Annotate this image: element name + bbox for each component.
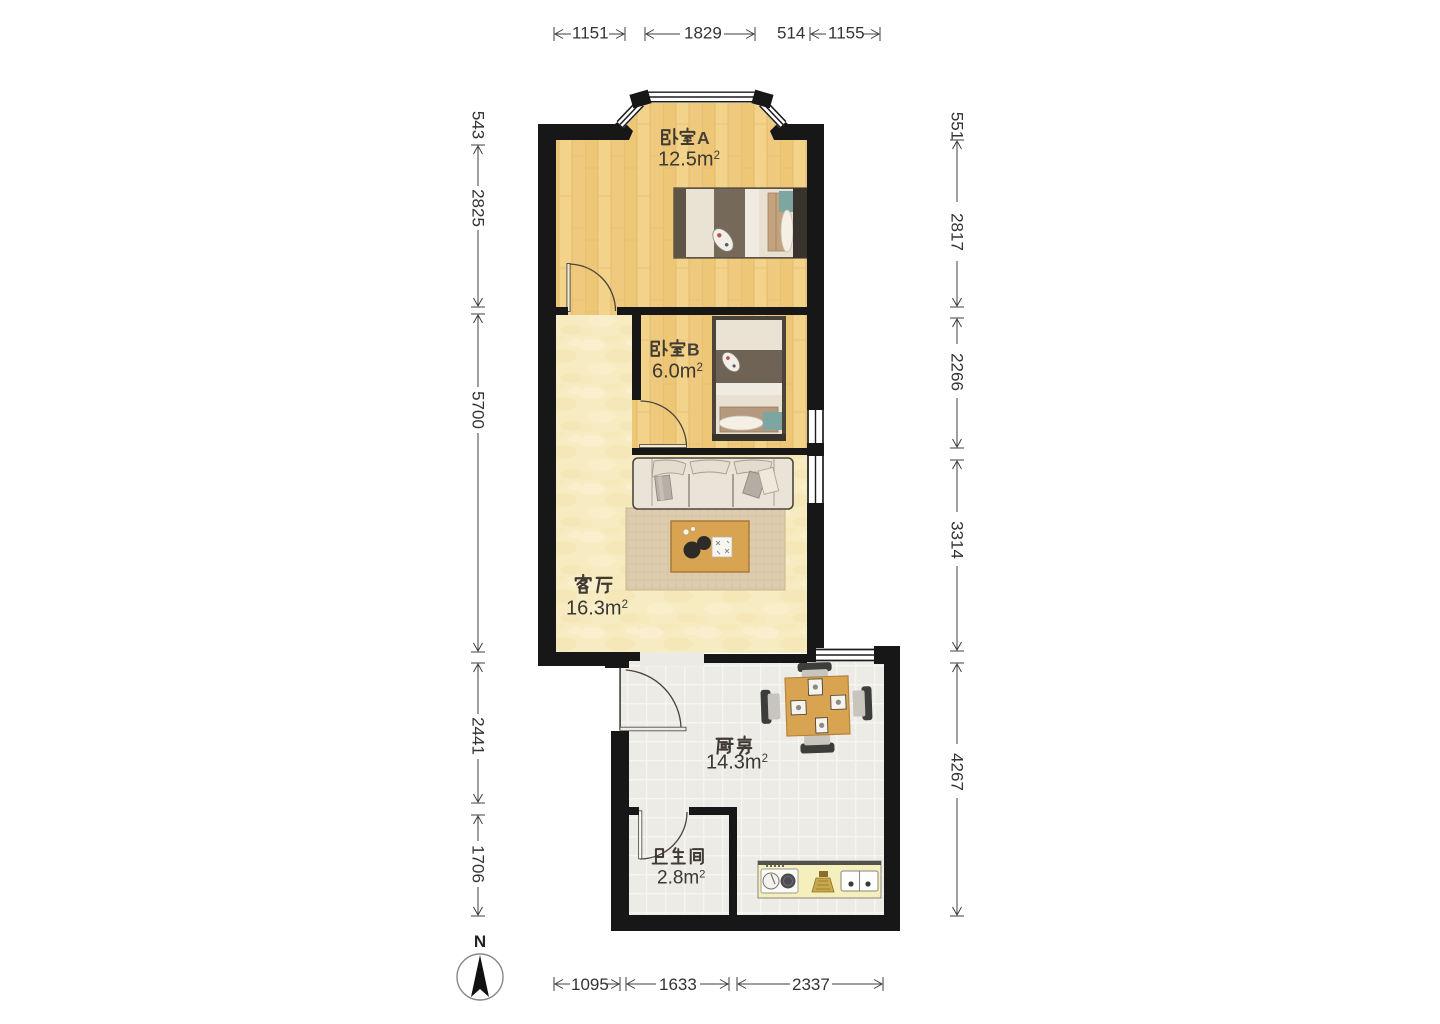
svg-text:2266: 2266 <box>948 353 967 391</box>
svg-text:1151: 1151 <box>572 24 609 43</box>
svg-text:3314: 3314 <box>948 521 967 559</box>
svg-text:543: 543 <box>469 111 488 139</box>
svg-text:2441: 2441 <box>469 717 488 755</box>
svg-text:2825: 2825 <box>469 189 488 227</box>
svg-text:A: A <box>697 128 710 148</box>
svg-text:1095: 1095 <box>571 975 609 994</box>
svg-text:16.3m2: 16.3m2 <box>566 598 628 620</box>
svg-text:12.5m2: 12.5m2 <box>658 149 720 171</box>
svg-text:2817: 2817 <box>948 213 967 251</box>
svg-text:1633: 1633 <box>659 975 697 994</box>
svg-text:514: 514 <box>777 24 805 43</box>
svg-text:2337: 2337 <box>792 975 830 994</box>
svg-text:2.8m2: 2.8m2 <box>657 868 705 889</box>
svg-text:14.3m2: 14.3m2 <box>706 752 768 774</box>
svg-text:6.0m2: 6.0m2 <box>652 361 703 383</box>
svg-text:1829: 1829 <box>684 24 722 43</box>
svg-text:1155: 1155 <box>828 24 865 43</box>
svg-text:B: B <box>687 340 700 360</box>
svg-text:4267: 4267 <box>948 753 967 791</box>
svg-text:5700: 5700 <box>469 391 488 429</box>
svg-text:N: N <box>474 932 486 951</box>
svg-text:1706: 1706 <box>469 845 488 883</box>
svg-text:551: 551 <box>948 112 967 140</box>
